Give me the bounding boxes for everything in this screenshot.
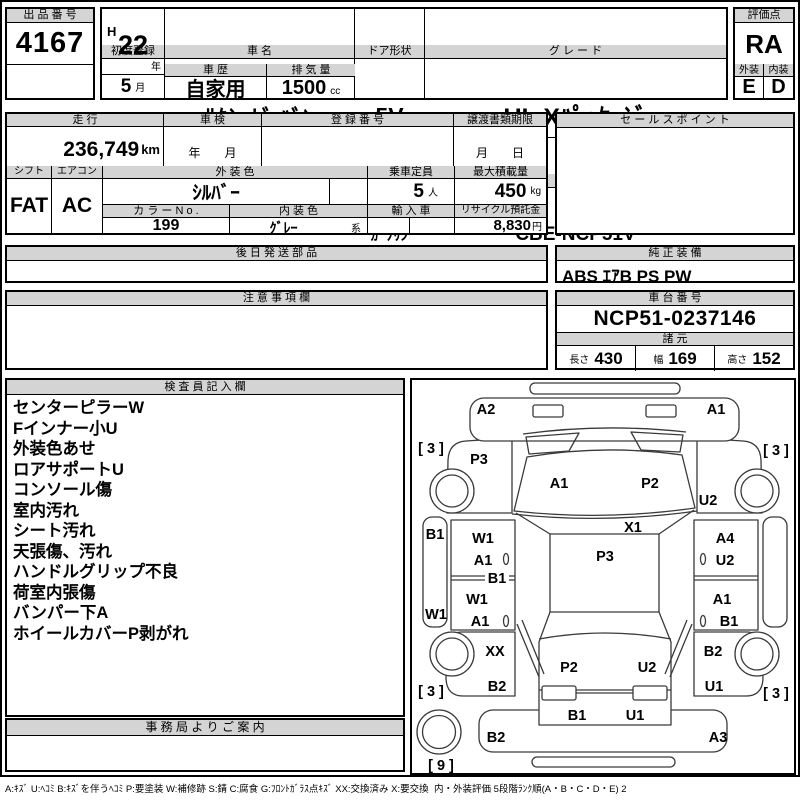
inspector-note-line: コンソール傷 [13,480,397,501]
damage-code-label: W1 [466,593,488,608]
damage-code-label: W1 [425,608,447,623]
damage-code-label: B1 [720,615,739,630]
sales-point-box: セ ー ル ス ポ イ ン ト [555,112,795,235]
recycle-fee-unit: 円 [532,218,542,233]
height-label: 高さ [727,351,747,366]
inspector-notes-label: 検 査 員 記 入 欄 [7,380,403,395]
exterior-grade-value: E [735,77,764,98]
transfer-deadline-value: 月 日 [454,127,546,166]
capacity-label: 乗車定員 [368,166,455,179]
door-shape-label: ドア形状 [355,45,424,59]
factory-equipment-box: 純 正 装 備 ABS ｴｱB PS PW [555,245,795,283]
door-column: ドア形状 5V 燃 料 ｶﾞｿﾘﾝ [355,9,425,98]
damage-code-label: U2 [716,554,735,569]
details-box: 走 行 車 検 登 録 番 号 譲渡書類期限 236,749 km 年 月 月 … [5,112,548,235]
damage-code-label: A4 [716,532,735,547]
caution-notes-label: 注 意 事 項 欄 [7,292,546,306]
factory-equipment-value: ABS ｴｱB PS PW [557,261,793,287]
shift-label: シフト [7,166,52,179]
first-reg-month-unit: 月 [135,79,145,94]
lot-number: 4167 [7,23,93,65]
color-no-value: 199 [103,218,230,233]
dimensions-row: 長さ 430 幅 169 高さ 152 [557,346,793,371]
score-box: 評価点 RA 外装 内装 E D [733,7,795,100]
import-value-cell-1 [368,218,410,233]
grade-label: グ レ ー ド [425,45,726,59]
damage-code-label: P3 [470,453,488,468]
mileage-value-cell: 236,749 km [7,127,164,166]
office-info-label: 事 務 局 よ り ご 案 内 [7,720,403,736]
inspector-note-line: 荷室内張傷 [13,583,397,604]
damage-code-label: B1 [488,572,507,587]
sales-point-label: セ ー ル ス ポ イ ン ト [557,114,793,128]
damage-code-label: P2 [641,477,659,492]
score-label: 評価点 [735,9,793,23]
damage-code-label: [ 3 ] [418,442,444,457]
displacement-value: 1500 [282,77,327,100]
damage-code-label: W1 [472,532,494,547]
lot-number-box: 出 品 番 号 4167 [5,7,95,100]
length-cell: 長さ 430 [557,346,636,371]
damage-code-label: [ 3 ] [763,444,789,459]
damage-code-label: P3 [596,550,614,565]
legend-text: A:ｷｽﾞ U:ﾍｺﾐ B:ｷｽﾞを伴うﾍｺﾐ P:要塗装 W:補修跡 S:錆 … [5,781,797,795]
damage-code-label: U1 [626,709,645,724]
damage-code-label: U2 [699,494,718,509]
height-cell: 高さ 152 [715,346,793,371]
displacement-label: 排 気 量 [267,64,355,77]
damage-code-label: [ 3 ] [418,685,444,700]
car-name-label: 車 名 [165,45,354,59]
damage-code-label: A1 [474,554,493,569]
capacity-value-cell: 5 人 [368,179,455,205]
shaken-value: 年 月 [164,127,262,166]
max-load-value-cell: 450 kg [455,179,546,205]
int-color-label: 内 装 色 [230,205,368,218]
damage-code-label: X1 [624,521,642,536]
inspector-note-line: センターピラーW [13,398,397,419]
chassis-box: 車 台 番 号 NCP51-0237146 諸 元 長さ 430 幅 169 高… [555,290,795,370]
max-load-value: 450 [495,181,527,203]
lot-stamp-area [7,65,93,98]
ext-color-extra-cell [330,179,368,205]
inspector-note-line: ロアサポートU [13,460,397,481]
inspector-note-line: 天張傷、汚れ [13,542,397,563]
damage-code-label: A1 [550,477,569,492]
inspector-note-line: ハンドルグリップ不良 [13,562,397,583]
first-reg-year: 22 [102,30,164,61]
first-reg-month-cell: 5 月 [102,75,164,98]
mileage-label: 走 行 [7,114,164,127]
int-color-suffix: 系 [351,220,361,235]
reg-no-label: 登 録 番 号 [262,114,454,127]
later-parts-box: 後 日 発 送 部 品 [5,245,548,283]
damage-code-label: XX [485,645,504,660]
ext-color-value: ｼﾙﾊﾞｰ [103,179,330,205]
capacity-unit: 人 [428,184,438,199]
inspector-note-line: シート汚れ [13,521,397,542]
chassis-no-value: NCP51-0237146 [557,306,793,333]
first-reg-column: 初度登録 H 22 年 5 月 [102,9,165,98]
score-value: RA [735,23,793,66]
inspector-note-line: 外装色あせ [13,439,397,460]
int-color-value-cell: ｸﾞﾚｰ 系 [230,218,368,233]
damage-code-label: A2 [477,403,496,418]
transfer-deadline-label: 譲渡書類期限 [454,114,546,127]
mileage-unit: km [141,142,160,157]
lot-number-label: 出 品 番 号 [7,9,93,23]
damage-code-label: A1 [713,593,732,608]
length-value: 430 [594,349,622,369]
inspector-note-line: ホイールカバーP剥がれ [13,624,397,645]
first-reg-month: 5 [121,76,132,98]
recycle-value-cell: 8,830 円 [455,218,546,233]
damage-code-label: [ 9 ] [428,759,454,774]
damage-code-label: A1 [707,403,726,418]
chassis-no-label: 車 台 番 号 [557,292,793,306]
import-value-cell-2 [410,218,455,233]
width-value: 169 [668,349,696,369]
max-load-unit: kg [530,186,541,197]
aircon-label: エアコン [52,166,103,179]
displacement-unit: cc [330,86,340,97]
damage-code-label: A1 [471,615,490,630]
reg-no-value [262,127,454,166]
dimensions-label: 諸 元 [557,333,793,346]
height-value: 152 [752,349,780,369]
damage-code-label: B1 [426,528,445,543]
damage-code-label: B1 [568,709,587,724]
inspector-note-line: バンパー下A [13,603,397,624]
caution-notes-box: 注 意 事 項 欄 [5,290,548,370]
width-cell: 幅 169 [636,346,715,371]
import-label: 輸 入 車 [368,205,455,218]
aircon-value: AC [52,179,103,233]
int-color-value: ｸﾞﾚｰ [230,218,337,238]
recycle-fee-value: 8,830 [493,217,531,234]
inspector-note-line: Fインナー小U [13,419,397,440]
capacity-value: 5 [413,181,424,203]
inspector-notes-box: 検 査 員 記 入 欄 センターピラーWFインナー小U外装色あせロアサポートUコ… [5,378,405,717]
first-reg-year-unit: 年 [151,58,161,73]
damage-code-label: [ 3 ] [763,687,789,702]
max-load-label: 最大積載量 [455,166,546,179]
damage-diagram-box: A2A1[ 3 ][ 3 ]P3A1P2U2B1W1X1A4A1P3U2B1W1… [410,378,796,775]
shift-value: FAT [7,179,52,233]
damage-code-label: B2 [488,680,507,695]
first-reg-year-cell: H 22 年 [102,22,164,75]
factory-equipment-label: 純 正 装 備 [557,247,793,261]
car-top-view-diagram [412,380,794,773]
office-info-box: 事 務 局 よ り ご 案 内 [5,718,405,772]
car-name-column: 車 名 ｻｸｼｰﾄﾞ ﾊﾞﾝ 車 歴 排 気 量 自家用 1500 cc [165,9,355,98]
shaken-label: 車 検 [164,114,262,127]
history-value: 自家用 [165,77,267,98]
later-parts-label: 後 日 発 送 部 品 [7,247,546,261]
inspector-note-line: 室内汚れ [13,501,397,522]
damage-code-label: B2 [487,731,506,746]
width-label: 幅 [653,351,663,366]
inspector-notes-list: センターピラーWFインナー小U外装色あせロアサポートUコンソール傷室内汚れシート… [7,395,403,647]
damage-code-label: A3 [709,731,728,746]
length-label: 長さ [569,351,589,366]
damage-code-label: U1 [705,680,724,695]
grade-column: グ レ ー ド UL Xﾊﾟｯｹｰｼﾞ 型 式 CBE-NCP51V [425,9,726,98]
damage-code-label: P2 [560,661,578,676]
interior-grade-value: D [764,77,793,98]
damage-code-label: U2 [638,661,657,676]
vehicle-header-box: 初度登録 H 22 年 5 月 車 名 ｻｸｼｰﾄﾞ ﾊﾞﾝ 車 歴 排 気 量… [100,7,728,100]
damage-code-label: B2 [704,645,723,660]
displacement-cell: 1500 cc [267,77,355,98]
mileage-value: 236,749 [63,138,139,162]
